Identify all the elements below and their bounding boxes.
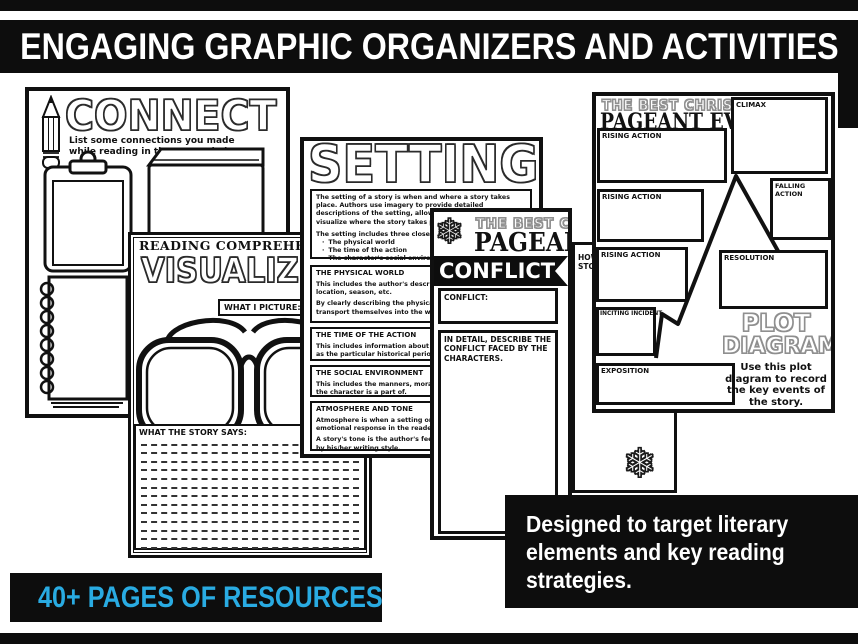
connect-title: CONNECT — [65, 91, 277, 140]
conflict-book-title-main: PAGEANT EVER — [474, 228, 572, 258]
snowflake-icon: ❄ — [623, 441, 657, 487]
plot-box-label: RISING ACTION — [601, 251, 683, 259]
plot-box-falling: FALLING ACTION — [770, 178, 831, 240]
callout-line: elements and key reading — [526, 538, 831, 566]
page-title: ENGAGING GRAPHIC ORGANIZERS AND ACTIVITI… — [20, 26, 839, 68]
plot-box-rising3: RISING ACTION — [596, 247, 688, 302]
dashed-line — [141, 489, 359, 498]
dashed-line — [141, 497, 359, 506]
plot-box-label: RESOLUTION — [724, 254, 823, 262]
corner-accent-block — [838, 73, 858, 128]
resources-banner: 40+ PAGES OF RESOURCES — [10, 573, 382, 622]
plot-diagram-title: PLOT DIAGRAM — [722, 311, 830, 358]
dashed-line — [141, 532, 359, 541]
plot-title-line1: PLOT — [722, 311, 830, 335]
plot-box-label: RISING ACTION — [602, 132, 722, 140]
snowflake-icon: ❄ — [435, 212, 464, 252]
setting-title: SETTING — [308, 137, 539, 195]
top-border-strip — [0, 0, 858, 11]
dashed-line — [141, 471, 359, 480]
plot-box-label: INCITING INCIDENT — [600, 311, 652, 317]
worksheet-plot-diagram: THE BEST CHRISTMAS PAGEANT EVER RISING A… — [592, 92, 835, 413]
plot-box-climax: CLIMAX — [731, 97, 828, 174]
plot-box-label: RISING ACTION — [602, 193, 699, 201]
plot-box-label: EXPOSITION — [601, 367, 730, 375]
plot-box-rising2: RISING ACTION — [597, 189, 704, 242]
callout-line: Designed to target literary — [526, 510, 831, 538]
callout-box: Designed to target literary elements and… — [505, 495, 858, 608]
dashed-line — [141, 514, 359, 523]
plot-caption: Use this plot diagram to record the key … — [724, 362, 828, 408]
dashed-line — [141, 523, 359, 532]
plot-box-rising1: RISING ACTION — [597, 128, 727, 183]
dashed-line — [141, 540, 359, 549]
plot-box-inciting: INCITING INCIDENT — [596, 307, 656, 356]
callout-line: strategies. — [526, 566, 831, 594]
plot-box-label: CLIMAX — [736, 101, 823, 109]
conflict-answer-box: CONFLICT: — [438, 288, 558, 324]
plot-box-resolution: RESOLUTION — [719, 250, 828, 309]
resources-banner-text: 40+ PAGES OF RESOURCES — [38, 581, 383, 615]
bottom-border-strip — [0, 633, 858, 644]
dashed-line — [141, 480, 359, 489]
promo-poster: ENGAGING GRAPHIC ORGANIZERS AND ACTIVITI… — [0, 0, 858, 644]
clipboard-icon — [43, 149, 133, 274]
conflict-ribbon: CONFLICT — [430, 256, 568, 286]
worksheet-conflict: ❄ THE BEST CHRISTMAS PAGEANT EVER CONFLI… — [430, 208, 572, 540]
plot-box-label: FALLING ACTION — [775, 182, 826, 198]
dashed-line — [141, 463, 359, 472]
conflict-box-label: CONFLICT: — [444, 293, 552, 302]
conflict-detail-label: IN DETAIL, DESCRIBE THE CONFLICT FACED B… — [444, 335, 552, 363]
plot-title-line2: DIAGRAM — [722, 335, 830, 358]
plot-box-exposition: EXPOSITION — [596, 363, 735, 405]
picture-label: WHAT I PICTURE: — [218, 299, 307, 316]
dashed-line — [141, 506, 359, 515]
header-banner: ENGAGING GRAPHIC ORGANIZERS AND ACTIVITI… — [0, 20, 858, 73]
visualize-title: VISUALIZE — [141, 251, 320, 291]
notebook-icon — [33, 273, 131, 415]
